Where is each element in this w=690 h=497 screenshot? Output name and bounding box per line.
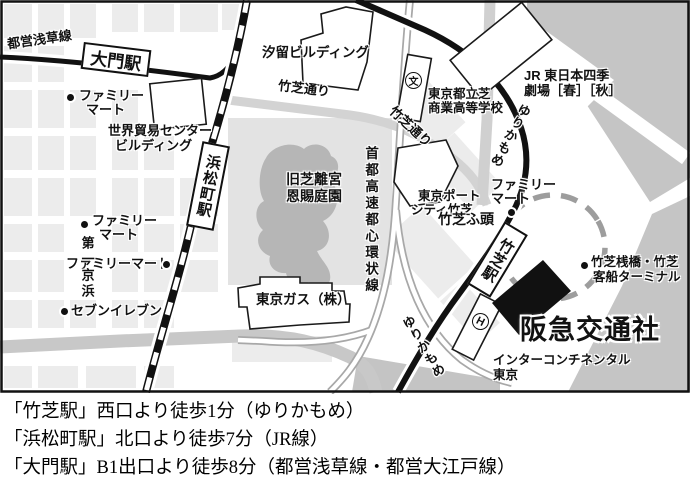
familymart-d-label-1: ファミリー: [491, 178, 556, 192]
intercontinental-label-1: インターコンチネンタル: [493, 354, 631, 367]
direction-line-takeshiba: 「竹芝駅」西口より徒歩1分（ゆりかもめ）: [4, 398, 686, 426]
school-icon-glyph: 文: [409, 73, 419, 88]
hotel-icon-glyph: H: [474, 314, 487, 328]
takeshiba-pier-label: 竹芝ふ頭: [438, 212, 494, 227]
terminal-dot: [581, 262, 588, 269]
direction-line-daimon: 「大門駅」B1出口より徒歩8分（都営浅草線・都営大江戸線）: [4, 454, 686, 482]
familymart-d-label-2: マート: [491, 192, 530, 206]
seven-eleven-dot: [61, 308, 68, 315]
daimon-station-label: 大門駅: [89, 44, 143, 75]
wtc-label-1: 世界貿易センター: [108, 124, 212, 138]
seven-eleven-label: セブンイレブン: [71, 304, 162, 318]
familymart-b-label-1: ファミリー: [92, 214, 157, 228]
jr-theatre-label-1: JR 東日本四季: [524, 69, 609, 83]
terminal-label-2: 客船ターミナル: [593, 271, 681, 284]
world-trade-center-building: [150, 78, 207, 129]
kyu-shiba-label-1: 旧芝離宮: [286, 172, 342, 187]
school-icon: 文: [405, 72, 422, 89]
shiba-school-label-2: 商業高等学校: [428, 102, 503, 115]
map-area: 大門駅 浜松町駅 竹芝駅 都営浅草線 汐留ビルディング 竹芝通り 竹芝通り 世界…: [0, 0, 690, 394]
familymart-b-label-2: マート: [99, 228, 138, 242]
familymart-d-dot: [508, 209, 515, 216]
familymart-a-label-1: ファミリー: [79, 89, 144, 103]
port-city-label-1: 東京ポート: [418, 190, 481, 203]
hankyu-label: 阪急交通社: [520, 316, 660, 344]
shiodome-building-label: 汐留ビルディング: [262, 46, 369, 60]
familymart-a-dot: [67, 94, 74, 101]
kyu-shiba-label-2: 恩賜庭園: [286, 189, 342, 204]
direction-line-hamamatsucho: 「浜松町駅」北口より徒歩7分（JR線）: [4, 426, 686, 454]
access-map: 大門駅 浜松町駅 竹芝駅 都営浅草線 汐留ビルディング 竹芝通り 竹芝通り 世界…: [0, 0, 690, 497]
daiichi-keihin-label: 第一京浜: [80, 236, 94, 300]
jr-theatre-label-2: 劇場［春］［秋］: [524, 84, 622, 98]
wtc-label-2: ビルディング: [115, 139, 192, 153]
tokyo-gas-label: 東京ガス（株）: [256, 293, 351, 307]
intercontinental-label-2: 東京: [493, 369, 518, 382]
familymart-a-label-2: マート: [86, 103, 125, 117]
familymart-c-dot: [163, 261, 170, 268]
directions-text: 「竹芝駅」西口より徒歩1分（ゆりかもめ） 「浜松町駅」北口より徒歩7分（JR線）…: [4, 398, 686, 482]
terminal-label-1: 竹芝桟橋・竹芝: [591, 256, 679, 269]
shiba-school-label-1: 東京都立芝: [428, 88, 491, 101]
familymart-b-dot: [81, 221, 88, 228]
shuto-expressway-label: 首都高速都心環状線: [363, 146, 377, 295]
